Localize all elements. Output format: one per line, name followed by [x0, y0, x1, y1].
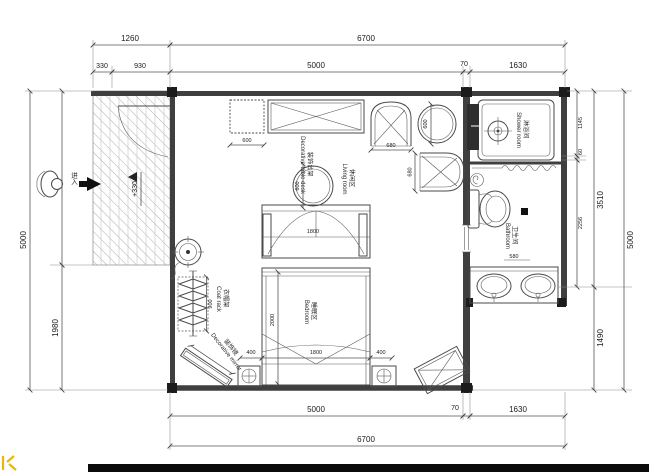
dim-right-bath: 2256 — [578, 217, 584, 229]
dim-chair-gap: 680 — [408, 167, 414, 176]
floor-plan-drawing: +330 — [0, 0, 649, 473]
dim-right-shower: 1145 — [578, 117, 584, 129]
dim-left-lower: 1980 — [51, 319, 60, 337]
sink-icon — [521, 274, 555, 302]
floor-plan-screenshot: +330 — [0, 0, 649, 473]
dim-top-porch-a: 330 — [96, 63, 108, 70]
dim-top-main: 5000 — [307, 61, 325, 70]
shower-door — [467, 104, 479, 150]
dim-wardrobe: 1800 — [307, 229, 319, 235]
bathroom: 卫生间 Bathroom 580 — [468, 174, 558, 304]
bathroom-label: 卫生间 Bathroom — [504, 223, 519, 249]
bathroom-door-opening — [462, 225, 471, 252]
dim-left-total: 5000 — [19, 231, 28, 249]
footer-bar — [88, 464, 649, 472]
entry-label: 进入 — [70, 172, 78, 186]
dim-top-total: 6700 — [357, 34, 375, 43]
dim-right-wall: 60 — [578, 149, 584, 155]
wardrobe: 1800 — [262, 205, 370, 258]
dim-bottom-right: 1630 — [509, 405, 527, 414]
living-room-label: 休闲区 Living room — [341, 163, 356, 194]
coat-rack-icon — [178, 271, 208, 336]
toilet-paper-icon — [471, 174, 484, 187]
dim-bottom-wall: 70 — [451, 405, 459, 412]
entry-person-icon — [37, 171, 63, 197]
toilet-icon — [468, 190, 510, 228]
dim-top-porch: 1260 — [121, 34, 139, 43]
entry-porch: +330 — [93, 91, 170, 265]
dim-right-lower: 1490 — [596, 329, 605, 347]
dim-bed-side-right: 400 — [376, 350, 385, 356]
dim-vanity: 580 — [509, 254, 518, 260]
vanity-counter — [470, 267, 558, 303]
decorative-table-label: 装饰台架 Decorative table desk — [299, 136, 314, 195]
dim-bed-width: 1800 — [310, 350, 322, 356]
living-area: 装饰台架 Decorative table desk 600 休闲区 Livin… — [230, 100, 464, 208]
cabinet — [230, 100, 264, 133]
ceiling-light-icon — [171, 236, 204, 279]
shower-curtain — [472, 166, 556, 171]
cropped-yellow-marks — [3, 456, 16, 470]
dim-top-right: 1630 — [509, 61, 527, 70]
dim-right-upper: 3510 — [596, 191, 605, 209]
dim-bed-length: 2000 — [270, 314, 276, 326]
dim-bed-side-left: 400 — [246, 350, 255, 356]
coat-rack-label: 衣帽架 Coat rack — [215, 286, 230, 313]
dim-round-table: 600 — [295, 181, 301, 190]
shower-room: 淋浴间 Shower room — [467, 100, 556, 171]
dim-bottom-total: 6700 — [357, 435, 375, 444]
dim-chair-width: 680 — [386, 143, 395, 149]
bedroom-label: 睡眠区 Bedroom — [303, 300, 318, 324]
shower-head-icon — [484, 117, 512, 145]
dim-top-wall: 70 — [460, 61, 468, 68]
nightstand-icon — [372, 366, 396, 387]
dim-side-table: 600 — [423, 119, 429, 128]
armchair-icon — [420, 153, 464, 191]
dim-bottom-main: 5000 — [307, 405, 325, 414]
armchair-icon — [371, 102, 411, 146]
dim-top-porch-b: 930 — [134, 63, 146, 70]
dim-cabinet: 600 — [242, 138, 251, 144]
porch-level: +330 — [132, 181, 139, 197]
dim-coat-rack: 900 — [208, 299, 214, 308]
decorative-table — [268, 100, 364, 133]
dim-right-total: 5000 — [626, 231, 635, 249]
sink-icon — [477, 274, 511, 302]
floor-drain-icon — [521, 208, 528, 215]
shower-room-label: 淋浴间 Shower room — [515, 112, 530, 148]
